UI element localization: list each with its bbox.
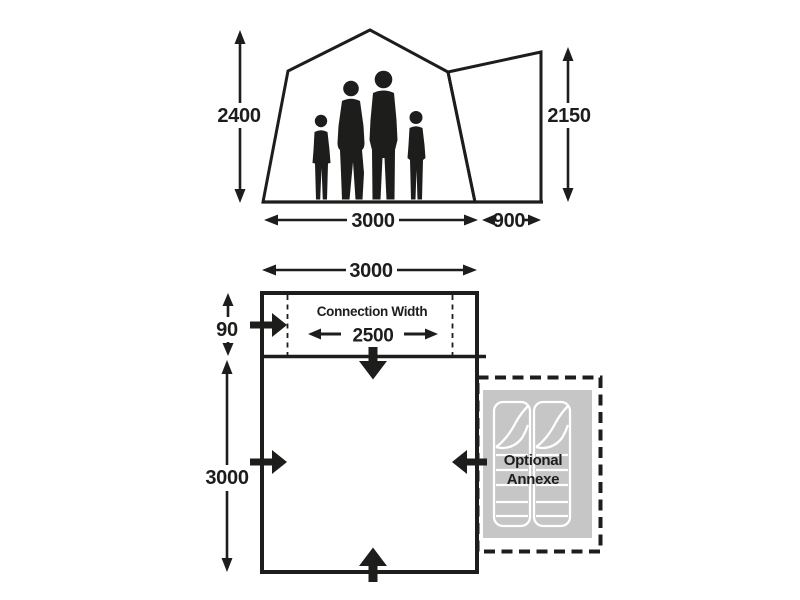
dim-height-annexe: 2150 bbox=[547, 47, 590, 202]
dim-label-plan-depth: 3000 bbox=[205, 467, 248, 489]
dim-width-annexe: 900 bbox=[482, 210, 541, 232]
dim-label-width-annexe: 900 bbox=[493, 210, 526, 232]
connection-down-arrow-icon bbox=[359, 347, 387, 380]
dim-connection-depth: 90 bbox=[216, 293, 238, 356]
boy-silhouette bbox=[408, 111, 426, 200]
diagram-svg: 2400 2150 3000 bbox=[0, 0, 800, 600]
dim-label-connection-depth: 90 bbox=[216, 319, 238, 341]
main-tent-outline bbox=[263, 30, 475, 202]
elevation-view: 2400 2150 3000 bbox=[217, 30, 590, 232]
man-silhouette bbox=[370, 71, 398, 200]
front-entrance-arrow-icon bbox=[359, 548, 387, 583]
family-silhouette bbox=[313, 71, 426, 200]
annexe-label-line2: Annexe bbox=[507, 471, 559, 488]
tent-outline bbox=[262, 30, 543, 202]
dim-plan-width: 3000 bbox=[262, 260, 477, 282]
annexe-panel-outline bbox=[448, 52, 541, 202]
floorplan-view: Optional Annexe Connection Width 2500 bbox=[205, 260, 600, 582]
dim-label-width-main: 3000 bbox=[351, 210, 394, 232]
tent-dimensions-diagram: 2400 2150 3000 bbox=[0, 0, 800, 600]
dim-label-height-main: 2400 bbox=[217, 105, 260, 127]
right-entrance-arrow-icon bbox=[452, 450, 487, 474]
connection-width-label: Connection Width bbox=[317, 304, 428, 319]
dim-connection-width: 2500 bbox=[308, 326, 438, 347]
dim-plan-depth: 3000 bbox=[205, 360, 248, 572]
woman-silhouette bbox=[338, 81, 365, 200]
dim-height-main: 2400 bbox=[217, 30, 260, 203]
dim-width-main: 3000 bbox=[264, 210, 478, 232]
left-entrance-arrow-icon bbox=[250, 450, 287, 474]
vertical-double-arrow-icon bbox=[222, 360, 233, 572]
connection-side-arrow-icon bbox=[250, 313, 287, 337]
dim-label-connection-width: 2500 bbox=[352, 326, 393, 347]
girl-silhouette bbox=[313, 115, 331, 200]
dim-label-height-annexe: 2150 bbox=[547, 105, 590, 127]
dim-label-plan-width: 3000 bbox=[349, 260, 392, 282]
entrance-arrows bbox=[250, 313, 487, 582]
annexe-label-line1: Optional bbox=[504, 452, 563, 469]
optional-annexe: Optional Annexe bbox=[478, 378, 601, 552]
